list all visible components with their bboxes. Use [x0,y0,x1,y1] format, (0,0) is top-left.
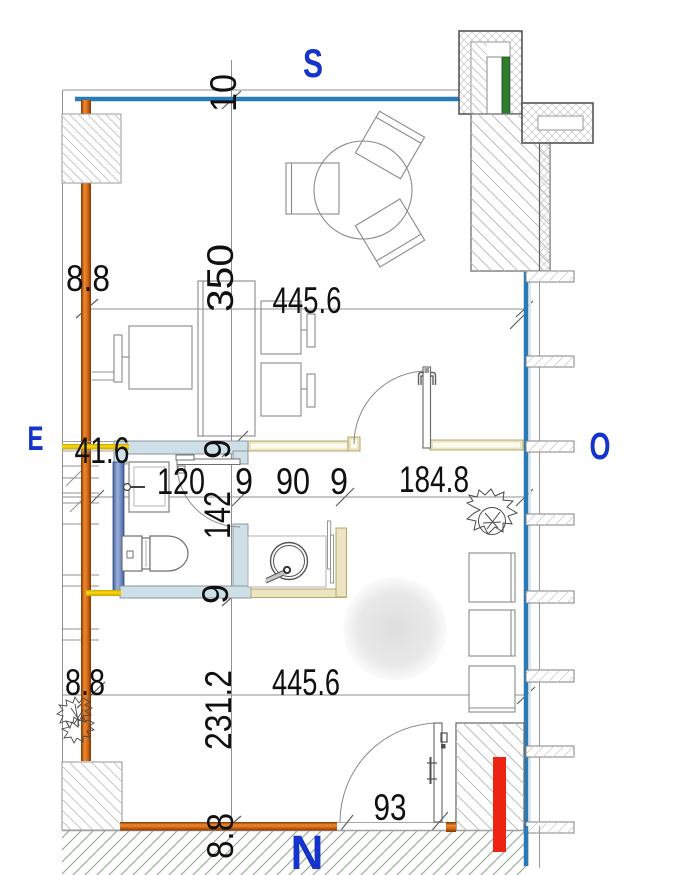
svg-text:445.6: 445.6 [272,662,340,703]
svg-text:9: 9 [197,439,238,459]
svg-text:90: 90 [276,461,310,502]
svg-text:9: 9 [330,461,348,502]
svg-text:231.2: 231.2 [198,670,239,750]
svg-text:10: 10 [203,74,244,112]
svg-text:8.8: 8.8 [65,662,105,703]
svg-text:41.6: 41.6 [75,430,130,471]
svg-text:O: O [590,426,611,468]
svg-text:8.8: 8.8 [66,258,110,299]
svg-text:9: 9 [195,584,236,604]
svg-text:142: 142 [197,491,238,539]
svg-text:8.8: 8.8 [200,813,241,859]
svg-text:445.6: 445.6 [273,280,342,321]
svg-text:350: 350 [200,244,241,312]
svg-text:E: E [28,420,44,458]
svg-text:184.8: 184.8 [399,459,469,500]
svg-text:N: N [291,827,324,875]
svg-text:S: S [303,42,323,86]
svg-text:93: 93 [374,787,407,828]
